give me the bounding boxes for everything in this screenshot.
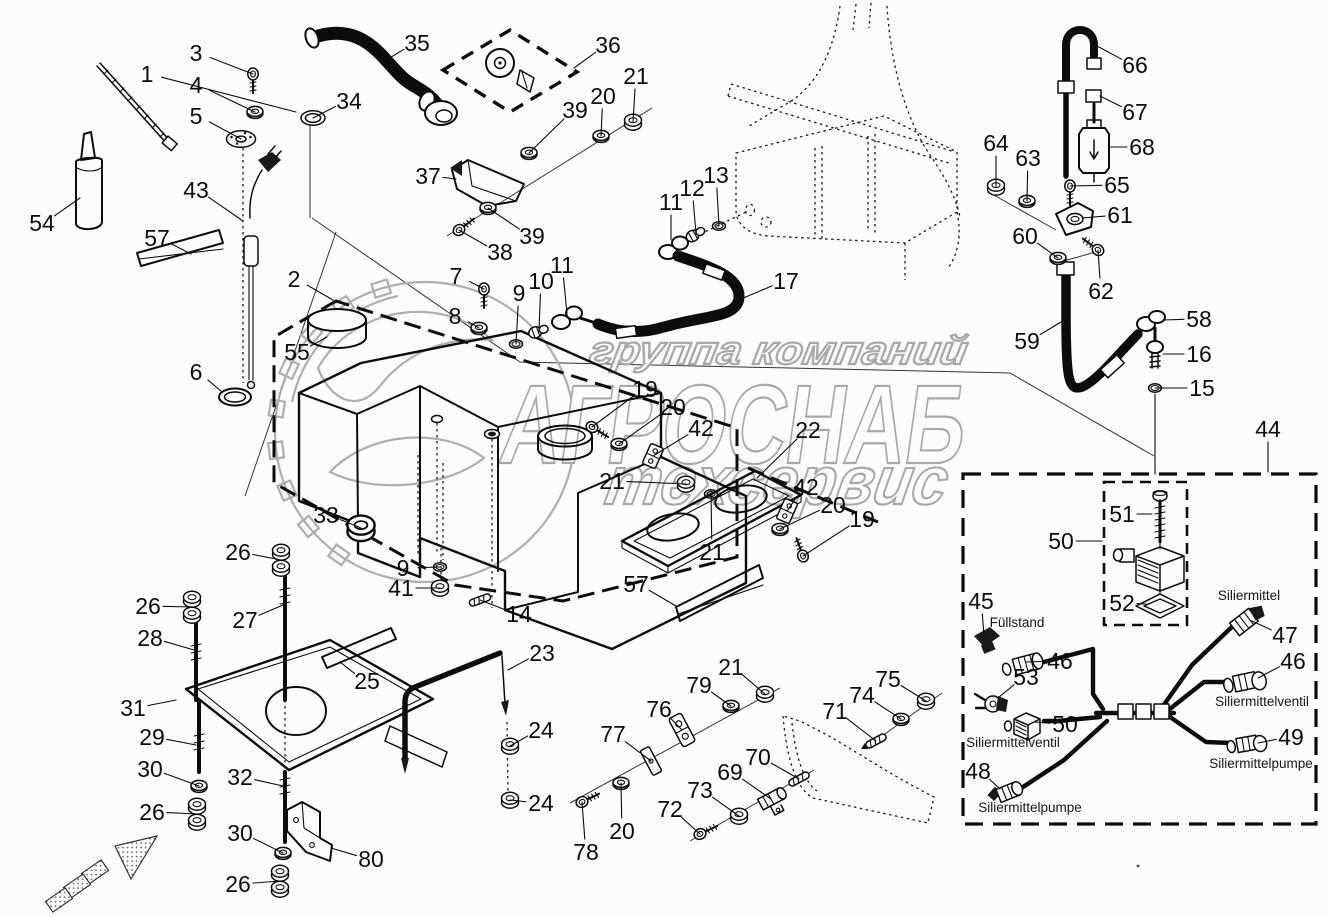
- part-callout-2: 2: [288, 266, 301, 292]
- leader-line-11: [564, 278, 567, 314]
- part-callout-9: 9: [513, 280, 526, 306]
- part-callout-76: 76: [646, 696, 672, 722]
- parts-diagram-page: группа компаний АГРОСНАБ техсервис: [0, 0, 1328, 917]
- leader-line-2: [307, 285, 333, 300]
- part-callout-50: 50: [1052, 711, 1078, 737]
- leader-line-3: [210, 57, 253, 74]
- part-callout-27: 27: [232, 607, 258, 633]
- component-label-0: Füllstand: [990, 615, 1045, 630]
- leader-line-72: [682, 817, 700, 834]
- part-callout-53: 53: [1013, 664, 1039, 690]
- leader-line-38: [459, 230, 487, 246]
- leader-line-71: [847, 719, 876, 741]
- leader-line-26: [163, 606, 192, 607]
- part-callout-7: 7: [450, 263, 463, 289]
- component-label-5: Siliermittelpumpe: [1209, 756, 1313, 771]
- leader-line-70: [771, 763, 799, 779]
- part-callout-19: 19: [632, 376, 658, 402]
- part-callout-45: 45: [968, 588, 994, 614]
- part-callout-68: 68: [1129, 134, 1155, 160]
- leader-line-10: [539, 294, 540, 331]
- leader-line-66: [1097, 46, 1122, 59]
- part-callout-4: 4: [190, 72, 203, 98]
- part-glyph-71: [859, 733, 887, 752]
- strip-25: [322, 628, 396, 668]
- component-label-2: Siliermittelpumpe: [978, 800, 1082, 815]
- part-callout-19: 19: [849, 506, 875, 532]
- part-callout-1: 1: [141, 61, 154, 87]
- part-callout-20: 20: [820, 492, 846, 518]
- part-callout-57: 57: [144, 225, 170, 251]
- part-callout-21: 21: [718, 654, 744, 680]
- part-callout-28: 28: [137, 625, 163, 651]
- part-callout-78: 78: [573, 839, 599, 865]
- part-callout-60: 60: [1012, 223, 1038, 249]
- cable-tie: [97, 63, 177, 151]
- cap-detail-box: [443, 30, 577, 112]
- frame-assembly: [186, 572, 447, 861]
- part-callout-55: 55: [284, 339, 310, 365]
- part-callout-36: 36: [595, 32, 621, 58]
- part-callout-63: 63: [1015, 145, 1041, 171]
- part-callout-42: 42: [688, 415, 714, 441]
- part-callout-21: 21: [623, 63, 649, 89]
- part-callout-33: 33: [313, 502, 339, 528]
- part-glyph-19: [792, 536, 810, 563]
- part-callout-41: 41: [388, 575, 414, 601]
- leader-line-79: [712, 692, 731, 706]
- part-glyph-3: [248, 68, 258, 93]
- leader-line-31: [148, 700, 176, 706]
- bracket-37: [450, 160, 524, 206]
- part-callout-29: 29: [139, 724, 165, 750]
- leader-line-30: [254, 838, 283, 853]
- stray-mark: [1137, 865, 1140, 868]
- part-callout-49: 49: [1278, 724, 1304, 750]
- part-callout-26: 26: [139, 799, 165, 825]
- leader-line-39: [488, 208, 519, 229]
- leader-line-1: [162, 77, 296, 112]
- leader-line-25: [340, 662, 355, 674]
- part-callout-79: 79: [686, 672, 712, 698]
- part-callout-21: 21: [699, 539, 725, 565]
- part-callout-46: 46: [1047, 648, 1073, 674]
- leader-line-28: [164, 641, 194, 650]
- part-callout-8: 8: [449, 303, 462, 329]
- part-callout-37: 37: [415, 163, 441, 189]
- part-callout-72: 72: [657, 796, 683, 822]
- part-glyph-38: [451, 214, 477, 237]
- part-callout-26: 26: [225, 539, 251, 565]
- leader-line-57: [649, 590, 676, 606]
- part-callout-13: 13: [703, 162, 729, 188]
- leader-line-27: [259, 605, 283, 615]
- part-callout-39: 39: [519, 223, 545, 249]
- leader-line-43: [209, 197, 243, 221]
- part-callout-5: 5: [190, 103, 203, 129]
- part-callout-20: 20: [590, 83, 616, 109]
- part-callout-70: 70: [745, 744, 771, 770]
- part-callout-20: 20: [660, 394, 686, 420]
- part-callout-3: 3: [190, 40, 203, 66]
- component-label-3: Siliermittel: [1218, 588, 1280, 603]
- leader-line-9: [418, 567, 440, 568]
- part-glyph-62: [1080, 234, 1106, 257]
- detail-box-44: [963, 474, 1316, 824]
- part-callout-21: 21: [599, 468, 625, 494]
- part-callout-30: 30: [137, 756, 163, 782]
- part-callout-61: 61: [1107, 202, 1133, 228]
- component-label-1: Siliermittelventil: [966, 735, 1060, 750]
- leader-line-17: [741, 286, 772, 299]
- leader-line-30: [164, 773, 199, 786]
- part-callout-20: 20: [609, 818, 635, 844]
- leader-line-21: [743, 675, 765, 694]
- part-callout-59: 59: [1014, 328, 1040, 354]
- part-callout-32: 32: [227, 764, 253, 790]
- part-callout-74: 74: [849, 682, 875, 708]
- leader-line-36: [574, 52, 596, 68]
- part-glyph-78: [574, 789, 601, 809]
- part-callout-34: 34: [336, 88, 362, 114]
- part-callout-14: 14: [506, 601, 532, 627]
- component-label-4: Siliermittelventil: [1215, 694, 1309, 709]
- part-callout-57: 57: [623, 571, 649, 597]
- leader-line-20: [621, 783, 622, 818]
- leader-line-4: [210, 90, 255, 112]
- part-callout-23: 23: [529, 640, 555, 666]
- leader-line-13: [717, 188, 719, 226]
- part-callout-26: 26: [135, 593, 161, 619]
- part-callout-6: 6: [190, 359, 203, 385]
- part-callout-12: 12: [679, 175, 705, 201]
- part-callout-80: 80: [358, 846, 384, 872]
- leader-line-58: [1163, 319, 1184, 320]
- part-callout-62: 62: [1088, 278, 1114, 304]
- level-sender: [219, 146, 281, 406]
- filler-pipe: [303, 27, 457, 125]
- leader-line-53: [998, 685, 1014, 698]
- part-callout-22: 22: [795, 417, 821, 443]
- part-callout-16: 16: [1186, 341, 1212, 367]
- part-callout-64: 64: [983, 130, 1009, 156]
- part-callout-35: 35: [404, 30, 430, 56]
- part-callout-15: 15: [1189, 375, 1215, 401]
- part-callout-42: 42: [793, 474, 819, 500]
- right-plumbing: [1056, 30, 1165, 474]
- leader-line-12: [693, 201, 696, 234]
- part-callout-47: 47: [1272, 622, 1298, 648]
- direction-arrow-icon: [46, 836, 158, 912]
- leader-line-6: [208, 380, 222, 392]
- leader-line-47: [1252, 621, 1271, 630]
- leader-line-69: [743, 779, 771, 799]
- part-callout-69: 69: [717, 759, 743, 785]
- machine-outline: [684, 3, 960, 280]
- leader-line-19: [803, 526, 849, 556]
- part-callout-24: 24: [528, 717, 554, 743]
- leader-line-39: [529, 119, 564, 153]
- part-callout-44: 44: [1255, 416, 1281, 442]
- part-callout-52: 52: [1109, 590, 1135, 616]
- watermark: группа компаний АГРОСНАБ техсервис: [268, 280, 975, 582]
- part-callout-11: 11: [550, 252, 574, 278]
- part-callout-31: 31: [120, 695, 146, 721]
- plate-57-bottom: [676, 565, 763, 621]
- leader-line-60: [1037, 243, 1058, 258]
- part-callout-25: 25: [354, 668, 380, 694]
- part-callout-67: 67: [1122, 99, 1148, 125]
- leader-line-23: [508, 659, 529, 670]
- sealant-cartridge: [76, 132, 102, 229]
- german-component-labels: FüllstandSiliermittelventilSiliermittelp…: [966, 588, 1313, 815]
- part-callout-26: 26: [225, 871, 251, 897]
- part-callout-17: 17: [773, 268, 799, 294]
- part-callout-39: 39: [562, 97, 588, 123]
- leader-line-29: [167, 739, 196, 745]
- leader-line-32: [255, 780, 283, 786]
- part-callout-51: 51: [1109, 501, 1135, 527]
- leader-line-67: [1100, 96, 1121, 107]
- part-callout-46: 46: [1280, 648, 1306, 674]
- part-callout-75: 75: [875, 666, 901, 692]
- part-callout-30: 30: [227, 820, 253, 846]
- part-callout-58: 58: [1186, 306, 1212, 332]
- part-callout-43: 43: [183, 177, 209, 203]
- part-callout-65: 65: [1104, 172, 1130, 198]
- part-callout-48: 48: [965, 758, 991, 784]
- part-callout-54: 54: [29, 210, 55, 236]
- nozzle-group: [640, 713, 934, 823]
- part-callout-73: 73: [687, 777, 713, 803]
- exploded-parts-diagram: группа компаний АГРОСНАБ техсервис: [0, 0, 1328, 917]
- part-callout-24: 24: [528, 790, 554, 816]
- leader-line-80: [331, 848, 357, 856]
- part-callout-77: 77: [600, 721, 626, 747]
- leader-line-63: [1027, 171, 1028, 201]
- part-callout-38: 38: [487, 239, 513, 265]
- leader-line-46: [1026, 661, 1045, 662]
- part-glyph-65: [1065, 180, 1075, 205]
- part-callout-66: 66: [1122, 52, 1148, 78]
- leader-line-74: [875, 702, 901, 719]
- leader-line-57: [171, 244, 191, 254]
- part-callout-50: 50: [1048, 528, 1074, 554]
- leader-line-21: [711, 494, 712, 539]
- part-callout-71: 71: [822, 698, 848, 724]
- hose-17: [552, 237, 739, 339]
- leader-line-65: [1070, 185, 1102, 186]
- leader-line-73: [712, 797, 739, 816]
